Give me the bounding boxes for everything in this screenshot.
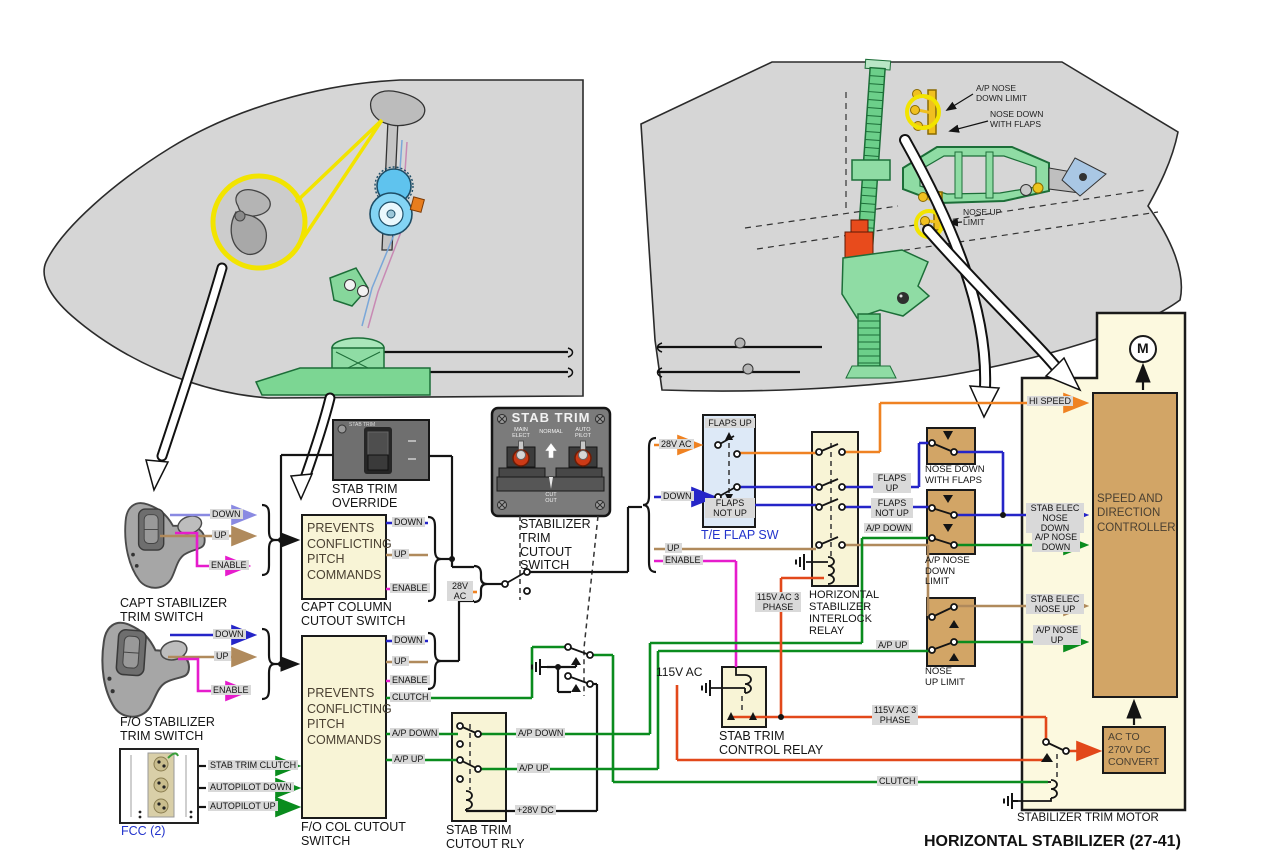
out-ap-down-label: A/P DOWN [864,523,913,533]
fo-box-apup-label: A/P UP [392,754,425,764]
fcc-apup-label: AUTOPILOT UP [208,801,278,811]
flaps-not-up-state-label: FLAPS NOT UP [705,498,755,518]
ap-nose-down-limit-label: A/P NOSE DOWN LIMIT [925,556,981,588]
stabilizer-trim-motor-label: STABILIZER TRIM MOTOR [1017,812,1159,825]
override-label: STAB TRIM OVERRIDE [332,483,427,511]
ctl-out-label: 115V AC 3 PHASE [872,705,918,725]
capt-box-up-label: UP [392,549,409,559]
bundle-28v-label: 28V AC [659,439,694,449]
rly-coil-label: +28V DC [515,805,556,815]
fo-enable-label: ENABLE [211,685,251,695]
tail-nose-down-with-flaps: NOSE DOWN WITH FLAPS [990,110,1048,130]
interlock-supply-label: 115V AC 3 PHASE [755,592,801,612]
cutout-main-elect: MAIN ELECT [508,427,534,440]
interlock-label: HORIZONTAL STABILIZER INTERLOCK RELAY [809,589,895,637]
fo-box-enable-label: ENABLE [390,675,430,685]
fo-box-body: PREVENTS CONFLICTING PITCH COMMANDS [307,686,383,749]
fo-switch-label: F/O STABILIZER TRIM SWITCH [120,716,228,744]
capt-enable-label: ENABLE [209,560,249,570]
cutout-cut-out: CUT OUT [539,492,563,505]
ctl-supply-label: 115V AC [656,666,702,679]
schematic-page: DOWN UP ENABLE DOWN UP ENABLE DOWN UP EN… [0,0,1280,864]
bundle-up-label: UP [665,543,682,553]
capt-down-label: DOWN [210,509,243,519]
cutout-auto-pilot: AUTO PILOT [570,427,596,440]
capt-up-label: UP [212,530,229,540]
out-ap-up-label: A/P UP [876,640,909,650]
clutch-run-label: CLUTCH [877,776,918,786]
ap-nose-down-label: A/P NOSE DOWN [1032,532,1080,552]
speed-direction-controller-box [1093,393,1177,697]
bundle-down-label: DOWN [661,491,694,501]
fcc-clutch-label: STAB TRIM CLUTCH [208,760,298,770]
rly-ap-down-label: A/P DOWN [516,728,565,738]
stab-trim-override-panel [333,420,429,480]
capt-box-enable-label: ENABLE [390,583,430,593]
controller-text: SPEED AND DIRECTION CONTROLLER [1097,492,1175,535]
fo-trim-switch-grip [98,622,191,721]
fo-box-clutch-label: CLUTCH [390,692,431,702]
cutout-normal: NORMAL [534,429,568,435]
capt-switch-label: CAPT STABILIZER TRIM SWITCH [120,597,228,625]
tail-ap-nose-down-limit: A/P NOSE DOWN LIMIT [976,84,1028,104]
stab-elec-nose-up-label: STAB ELEC NOSE UP [1026,594,1084,614]
bus-28v-label: 28V AC [447,581,473,601]
fo-down-label: DOWN [213,629,246,639]
capt-box-label: CAPT COLUMN CUTOUT SWITCH [301,601,416,629]
fo-box-apdown-label: A/P DOWN [390,728,439,738]
bundle-enable-label: ENABLE [663,555,703,565]
page-title: HORIZONTAL STABILIZER (27-41) [924,833,1181,851]
rly-ap-up-label: A/P UP [517,763,550,773]
fcc-box [120,749,198,823]
fo-up-label: UP [214,651,231,661]
nose-up-limit-label: NOSE UP LIMIT [925,667,967,688]
override-panel-title: STAB TRIM [349,423,375,429]
cutout-panel-label: STABILIZER TRIM CUTOUT SWITCH [520,518,604,573]
fo-box-down-label: DOWN [392,635,425,645]
cutout-panel-title: STAB TRIM [492,411,610,426]
nose-down-with-flaps-label: NOSE DOWN WITH FLAPS [925,465,985,486]
rly-label: STAB TRIM CUTOUT RLY [446,824,538,852]
flaps-up-state-label: FLAPS UP [705,418,755,428]
out-flaps-up-label: FLAPS UP [873,473,911,493]
fo-box-up-label: UP [392,656,409,666]
out-flaps-not-up-label: FLAPS NOT UP [871,498,913,518]
capt-box-body: PREVENTS CONFLICTING PITCH COMMANDS [307,521,383,584]
converter-text: AC TO 270V DC CONVERT [1108,731,1162,769]
tail-nose-up-limit: NOSE UP LIMIT [963,208,1003,228]
nose-illustration [44,80,583,398]
fo-box-label: F/O COL CUTOUT SWITCH [301,821,416,849]
fcc-apdown-label: AUTOPILOT DOWN [208,782,294,792]
hi-speed-label: HI SPEED [1027,396,1073,406]
te-flap-sw-label: T/E FLAP SW [701,529,779,543]
stab-elec-nose-down-label: STAB ELEC NOSE DOWN [1026,503,1084,533]
motor-m-label: M [1137,341,1149,357]
ctl-relay-label: STAB TRIM CONTROL RELAY [719,730,829,758]
capt-box-down-label: DOWN [392,517,425,527]
ap-nose-up-label: A/P NOSE UP [1033,625,1081,645]
fcc-label: FCC (2) [121,825,165,839]
